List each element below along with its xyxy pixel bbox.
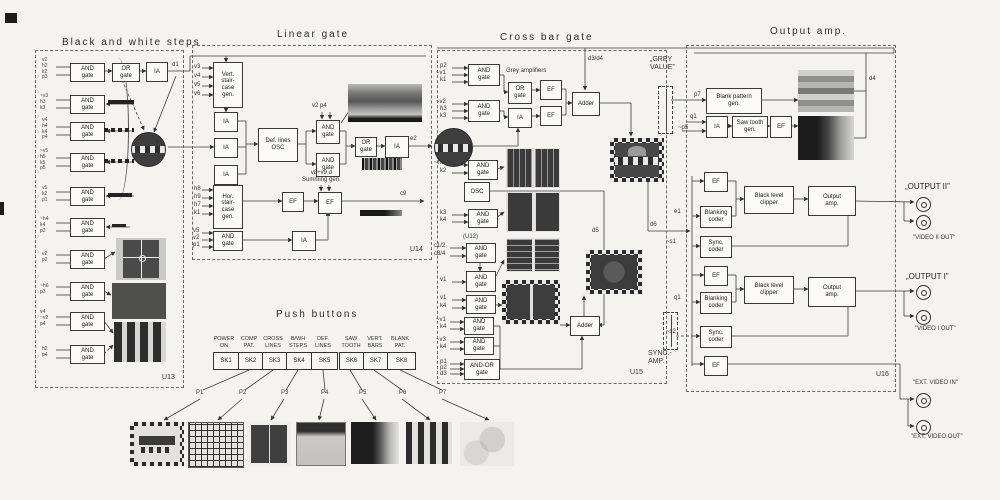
sig-nv3: ~v3 (436, 337, 446, 344)
sig-c9: c9 (400, 191, 406, 198)
and-gate: AND gate (316, 120, 340, 144)
output-amp-block: Output amp. (808, 186, 856, 216)
barcode-strip-pattern (362, 158, 402, 170)
video-i-connector-1 (916, 285, 931, 300)
and-gate: AND gate (466, 243, 496, 263)
vertical-lines-pattern (506, 148, 560, 188)
button-caption-sk8: BLANK PAT. (384, 336, 416, 349)
ext-video-in-label: "EXT. VIDEO IN" (913, 380, 958, 387)
circle-checker-pattern (586, 250, 642, 294)
ef-follower: EF (704, 266, 728, 286)
black-level-clipper: Black level clipper (744, 276, 794, 304)
sig-nh6: ~h6 (434, 160, 444, 167)
osc: OSC (464, 182, 490, 202)
sig-nv1: ~v1 (436, 317, 446, 324)
push-button-sk3: SK3 (262, 352, 287, 370)
sig-nv1: ~v1 (436, 70, 446, 77)
ext-video-out-connector (916, 420, 931, 435)
thumb-def-lines (296, 422, 346, 466)
ia-amplifier: IA (292, 231, 316, 251)
thumb-composite-pattern (130, 422, 184, 466)
sawtooth-gradient-pattern (798, 116, 854, 160)
checker-framed-pattern (502, 280, 560, 324)
and-gate: AND gate (464, 337, 494, 355)
ef-follower: EF (704, 356, 728, 376)
sig-nv2: ~v2 (436, 99, 446, 106)
sig-k4: k4 (440, 344, 446, 351)
ia-amplifier: IA (214, 165, 238, 185)
ef-follower: EF (540, 106, 562, 126)
sig-k2: k2 (440, 168, 446, 175)
thumb-blank-pattern (460, 422, 514, 466)
sig-v1: v1 (440, 295, 446, 302)
ef-follower: EF (770, 116, 792, 138)
ia-amplifier: IA (385, 136, 409, 158)
video-ii-connector-2 (916, 215, 931, 230)
sig-v1: v1 (440, 277, 446, 284)
sig-k3: k3 (440, 113, 446, 120)
push-button-sk6: SK6 (339, 352, 364, 370)
video-ii-out-label: "VIDEO II OUT" (913, 235, 955, 242)
waveform-strip (104, 159, 134, 163)
sig-v4: v4 (194, 73, 200, 80)
sig-q1: q1 (690, 114, 697, 121)
and-gate: AND gate (70, 282, 105, 301)
bw-inputs-1: v2 h2 k2 p3 (42, 58, 48, 81)
push-button-sk7: SK7 (363, 352, 388, 370)
thumb-center-line (247, 422, 291, 466)
ia-amplifier: IA (214, 138, 238, 158)
grey-amplifiers-label: Grey amplifiers (506, 68, 546, 75)
or-gate: OR gate (112, 63, 140, 82)
and-gate: AND gate (468, 160, 498, 180)
adder: Adder (570, 316, 600, 336)
sig-q1: q1 (674, 295, 681, 302)
bw-inputs-3: v4 h4 k4 p4 (42, 118, 48, 141)
edge-line-pattern (506, 192, 560, 232)
and-gate: AND gate (70, 122, 105, 141)
output-i-label: „OUTPUT I” (906, 272, 949, 281)
p-label-1: P1 (196, 390, 203, 397)
sig-d6: d6 (650, 222, 657, 229)
waveform-strip (108, 193, 132, 197)
sig-v2p4: v2 p4 (312, 103, 327, 110)
p-label-6: P6 (399, 390, 406, 397)
sig-ns2: ~s2 (666, 329, 676, 336)
and-gate: AND gate (468, 209, 498, 228)
output-ii-label: „OUTPUT II” (905, 182, 950, 191)
unit-u15: U15 (630, 369, 643, 376)
thumb-cross-lines (188, 422, 244, 468)
grey-value-label: „GREY VALUE” (650, 56, 675, 72)
summing-gen-label: v8+v9 d Summing gen. (302, 170, 341, 184)
scan-artifact (5, 13, 17, 23)
push-button-sk8: SK8 (387, 352, 416, 370)
and-gate: AND gate (70, 312, 105, 331)
p-label-4: P4 (321, 390, 328, 397)
push-button-sk4: SK4 (286, 352, 312, 370)
ia-amplifier: IA (508, 108, 532, 128)
unit-u14: U14 (410, 246, 423, 253)
and-gate: AND gate (468, 64, 500, 86)
cross-title: Cross bar gate (500, 32, 594, 43)
black-level-clipper: Black level clipper (744, 186, 794, 214)
sig-h9: h9 (194, 194, 201, 201)
ia-amplifier: IA (706, 116, 728, 138)
and-gate: AND gate (213, 231, 243, 251)
checkerboard-ball-pattern (131, 132, 166, 167)
vertical-bars-pattern (114, 322, 166, 362)
and-gate: AND gate (466, 295, 496, 314)
blurred-bands-pattern (348, 84, 422, 122)
blanking-coder: Blanking coder (700, 292, 732, 314)
sig-d5: d5 (592, 228, 599, 235)
or-gate: OR gate (355, 137, 377, 157)
ia-amplifier: IA (214, 112, 238, 132)
sig-k4: k4 (440, 303, 446, 310)
ef-follower: EF (704, 172, 728, 192)
composite-checker-pattern (610, 138, 664, 182)
and-gate: AND gate (468, 100, 500, 122)
bw-inputs-8: ~h6 p3 (40, 284, 48, 296)
sig-v3: v3 (194, 64, 200, 71)
unit-u12: (U12) (463, 234, 478, 240)
sig-k3: k3 (440, 210, 446, 217)
sig-h8: h8 (194, 186, 201, 193)
sig-d4: d4 (869, 76, 876, 83)
and-gate: AND gate (464, 317, 494, 335)
sig-np5: ~p5 (678, 125, 688, 132)
unit-u13: U13 (162, 374, 175, 381)
horizontal-lines-pattern (506, 238, 560, 272)
crosshair-pattern (116, 238, 166, 280)
sync-coder: Sync. coder (700, 236, 732, 258)
push-button-sk1: SK1 (213, 352, 239, 370)
sig-h7: h7 (194, 202, 201, 209)
and-gate: AND gate (70, 187, 105, 206)
video-ii-connector-1 (916, 197, 931, 212)
ia-amplifier: IA (146, 62, 168, 82)
sig-k1: k1 (194, 210, 200, 217)
and-gate: AND gate (70, 95, 105, 114)
ext-video-out-label: "EXT. VIDEO OUT" (911, 434, 963, 441)
sig-d34: d3/d4 (588, 56, 603, 63)
sig-v5: v5 (194, 82, 200, 89)
sig-p2: p2 (440, 63, 447, 70)
ef-follower: EF (318, 192, 342, 214)
bw-inputs-4: ~v5 h5 k5 p5 (40, 149, 48, 172)
p-label-5: P5 (359, 390, 366, 397)
sig-e1: e1 (156, 139, 163, 146)
push-button-sk5: SK5 (311, 352, 338, 370)
vert-staircase-gen: Vert. stair- case gen. (213, 62, 243, 108)
dark-strip-pattern (360, 210, 402, 216)
sig-e2: e2 (410, 136, 417, 143)
blanking-coder: Blanking coder (700, 206, 732, 228)
sig-d1: d1 (172, 62, 179, 69)
sig-c12: c1/2 (434, 243, 445, 250)
linear-title: Linear gate (277, 29, 349, 40)
sig-p7: p7 (694, 92, 701, 99)
bw-inputs-6: ~h4 k4 p2 (40, 217, 48, 234)
schematic-page: Black and white steps Linear gate Cross … (0, 0, 1000, 500)
sig-k4: k4 (440, 217, 446, 224)
video-i-out-label: "VIDEO I OUT" (915, 326, 956, 333)
unit-u16: U16 (876, 371, 889, 378)
bw-inputs-5: v5 k2 p1 (42, 186, 48, 203)
bw-inputs-10: h2 p4 (42, 347, 48, 359)
ef-follower: EF (282, 192, 304, 212)
or-gate: OR gate (508, 82, 532, 104)
def-lines-osc: Def. lines OSC (258, 128, 298, 162)
sig-ns1: ~s1 (666, 239, 676, 246)
p-label-2: P2 (239, 390, 246, 397)
p-label-3: P3 (281, 390, 288, 397)
sync-coder: Sync. coder (700, 326, 732, 348)
sig-c34: c3/4 (434, 251, 445, 258)
video-i-connector-2 (916, 310, 931, 325)
blank-pattern-gen: Blank pattern gen. (706, 88, 762, 114)
sig-v6: v6 (194, 91, 200, 98)
bw-inputs-9: v4 ~v2 p4 (40, 310, 48, 327)
sig-k1: k1 (440, 77, 446, 84)
and-gate: AND gate (70, 63, 105, 82)
bw-inputs-2: ~v3 h3 k3 (40, 94, 48, 111)
push-button-sk2: SK2 (238, 352, 263, 370)
bw-title: Black and white steps (62, 37, 201, 48)
and-or-gate: AND-OR gate (464, 359, 500, 380)
grey-value-potentiometer (658, 86, 673, 134)
hor-staircase-gen: Hor. stair- case gen. (213, 185, 243, 229)
gray-field-pattern (112, 283, 166, 319)
push-title: Push buttons (276, 309, 358, 320)
sync-amp-label: SYNC.- AMP. (648, 350, 672, 366)
scan-artifact (0, 202, 4, 215)
gray-bands-pattern (798, 70, 854, 112)
sig-d3: d3 (440, 371, 447, 378)
and-gate: AND gate (70, 153, 105, 172)
and-gate: AND gate (70, 250, 105, 269)
adder: Adder (572, 92, 600, 116)
thumb-sawtooth (351, 422, 399, 464)
saw-tooth-gen: Saw tooth gen. (732, 116, 768, 138)
output-amp-block: Output amp. (808, 277, 856, 307)
sig-e1: e1 (674, 209, 681, 216)
and-gate: AND gate (466, 271, 496, 292)
sig-k4: k4 (440, 324, 446, 331)
sig-h3: h3 (440, 106, 447, 113)
waveform-strip (104, 128, 134, 132)
waveform-strip (108, 100, 134, 104)
ext-video-in-connector (916, 393, 931, 408)
lg-and-inputs: v5 v2 p1 (193, 228, 200, 249)
and-gate: AND gate (70, 345, 105, 364)
ef-follower: EF (540, 80, 562, 100)
output-title: Output amp. (770, 26, 847, 37)
and-gate: AND gate (70, 218, 105, 237)
bw-inputs-7: v2 p2 (42, 252, 48, 264)
waveform-strip (112, 224, 126, 227)
thumb-vertical-bars (406, 422, 452, 464)
p-label-7: P7 (439, 390, 446, 397)
